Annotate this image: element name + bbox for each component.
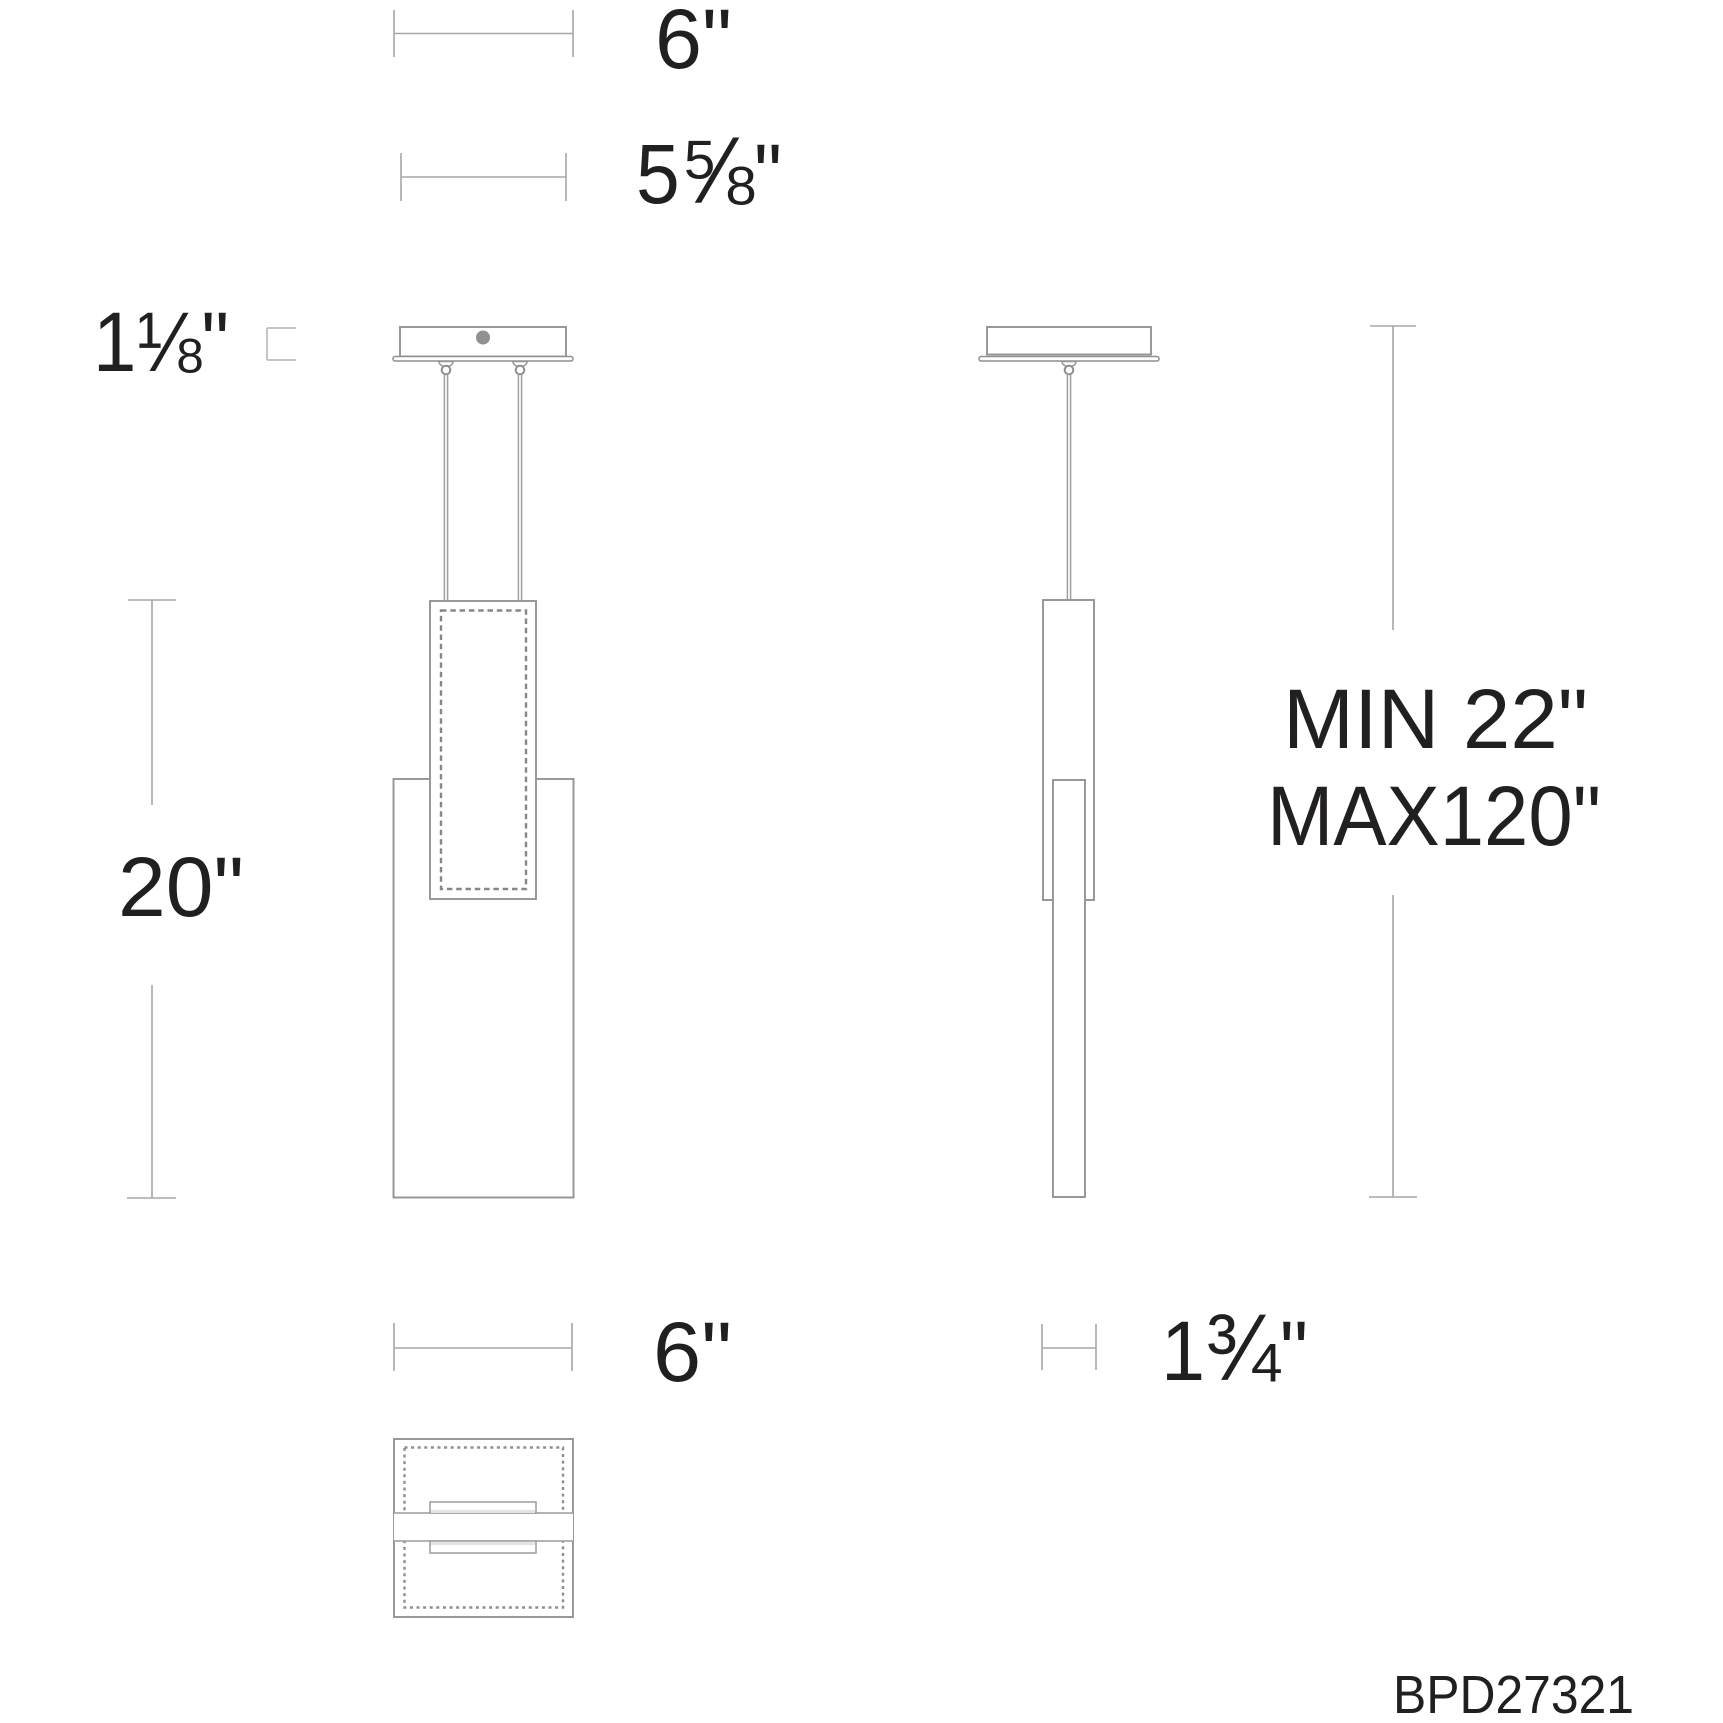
svg-text:BPD27321: BPD27321 <box>1393 1665 1634 1723</box>
svg-text:20": 20" <box>118 840 244 934</box>
svg-text:MIN 22": MIN 22" <box>1283 672 1588 766</box>
svg-text:6": 6" <box>655 0 732 86</box>
svg-text:6": 6" <box>653 1305 732 1399</box>
svg-text:1¾": 1¾" <box>1161 1295 1308 1401</box>
svg-text:5⅝": 5⅝" <box>636 118 782 224</box>
svg-text:MAX120": MAX120" <box>1267 769 1601 863</box>
svg-text:1⅛": 1⅛" <box>93 295 229 389</box>
